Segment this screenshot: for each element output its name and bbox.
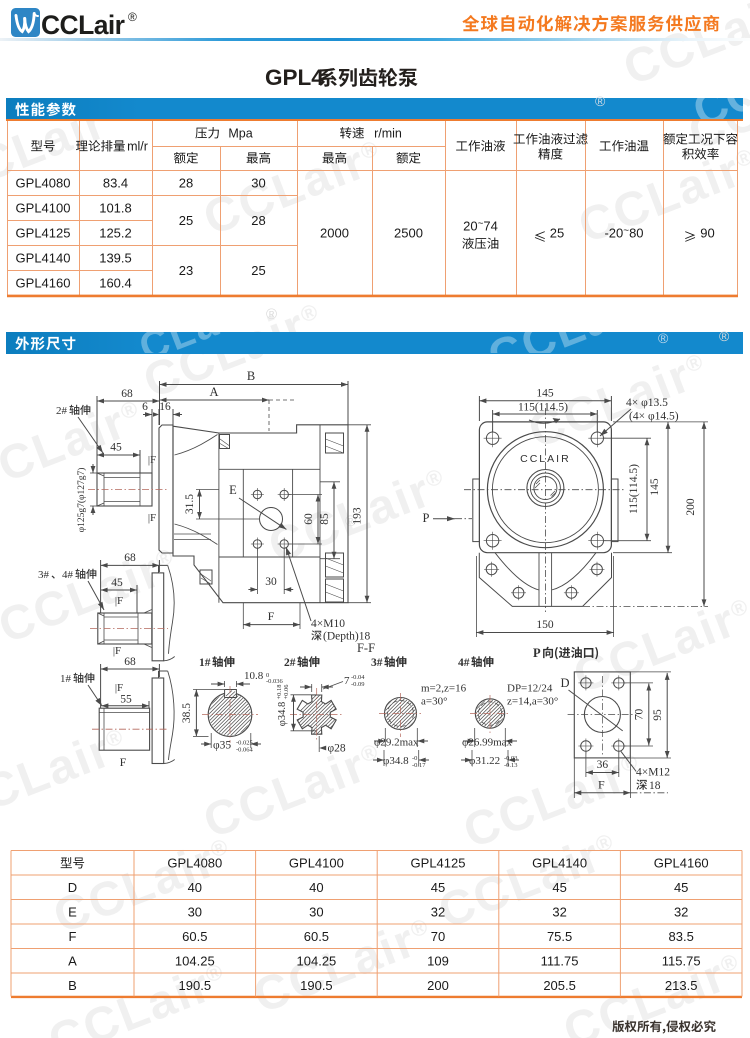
svg-text:-0.09: -0.09 <box>351 681 365 688</box>
svg-text:P: P <box>533 646 541 660</box>
svg-text:φ125g7(φ127g7): φ125g7(φ127g7) <box>76 468 87 533</box>
svg-text:36: 36 <box>597 759 609 771</box>
svg-text:-0.036: -0.036 <box>266 678 284 685</box>
svg-text:104.25: 104.25 <box>175 954 215 969</box>
svg-text:68: 68 <box>121 388 133 400</box>
svg-text:1#: 1# <box>60 673 72 685</box>
svg-text:115(114.5): 115(114.5) <box>628 464 640 514</box>
svg-text:+0.06: +0.06 <box>283 684 290 700</box>
svg-text:|F: |F <box>148 454 156 466</box>
svg-text:109: 109 <box>427 954 449 969</box>
svg-text:4#: 4# <box>62 569 74 581</box>
svg-text:φ34.8: φ34.8 <box>277 702 288 726</box>
svg-text:32: 32 <box>431 905 445 920</box>
svg-text:F: F <box>598 778 605 792</box>
svg-text:-0.17: -0.17 <box>412 762 426 769</box>
svg-text:104.25: 104.25 <box>297 954 337 969</box>
svg-text:115.75: 115.75 <box>662 954 701 969</box>
svg-text:GPL4: GPL4 <box>265 65 324 90</box>
svg-text:a=30°: a=30° <box>421 696 448 708</box>
svg-text:GPL4125: GPL4125 <box>411 856 466 871</box>
svg-text:m=2,z=16: m=2,z=16 <box>421 683 467 695</box>
svg-text:60.5: 60.5 <box>182 929 207 944</box>
svg-text:145: 145 <box>536 388 554 400</box>
svg-text:B: B <box>68 978 77 993</box>
svg-text:6: 6 <box>142 401 148 413</box>
svg-text:-0.064: -0.064 <box>236 747 254 754</box>
svg-text:45: 45 <box>111 577 123 589</box>
svg-text:D: D <box>68 880 77 895</box>
svg-text:68: 68 <box>124 552 136 564</box>
svg-text:95: 95 <box>652 709 664 721</box>
svg-text:GPL4140: GPL4140 <box>532 856 587 871</box>
svg-text:70: 70 <box>634 709 646 721</box>
svg-text:4×M10: 4×M10 <box>311 618 345 630</box>
svg-text:E: E <box>229 483 237 497</box>
svg-text:30: 30 <box>309 905 323 920</box>
svg-text:45: 45 <box>552 880 566 895</box>
svg-text:-0: -0 <box>412 755 417 762</box>
svg-text:7: 7 <box>344 675 350 687</box>
svg-text:45: 45 <box>431 880 445 895</box>
svg-text:z=14,a=30°: z=14,a=30° <box>507 696 558 708</box>
svg-text:φ26.99max: φ26.99max <box>462 737 513 749</box>
svg-text:31.5: 31.5 <box>184 494 196 514</box>
svg-text:φ35: φ35 <box>213 740 231 752</box>
svg-text:55: 55 <box>120 694 132 706</box>
svg-text:85: 85 <box>319 513 331 525</box>
svg-text:190.5: 190.5 <box>179 978 212 993</box>
svg-text:D: D <box>560 676 569 690</box>
svg-text:A: A <box>68 954 77 969</box>
svg-text:DP=12/24: DP=12/24 <box>507 683 553 695</box>
svg-text:40: 40 <box>309 880 323 895</box>
svg-text:E: E <box>68 905 77 920</box>
svg-text:F-F: F-F <box>357 641 375 655</box>
svg-text:205.5: 205.5 <box>543 978 576 993</box>
svg-text:+0.18: +0.18 <box>276 684 283 699</box>
svg-text:P: P <box>423 511 430 525</box>
svg-text:φ34.8: φ34.8 <box>383 755 409 767</box>
svg-text:4×M12: 4×M12 <box>636 767 670 779</box>
svg-text:145: 145 <box>649 478 661 496</box>
svg-text:190.5: 190.5 <box>300 978 333 993</box>
svg-text:2#: 2# <box>284 657 296 669</box>
svg-text:F: F <box>69 929 77 944</box>
svg-text:70: 70 <box>431 929 445 944</box>
svg-text:|F: |F <box>148 512 156 524</box>
svg-text:213.5: 213.5 <box>665 978 698 993</box>
svg-text:|F: |F <box>113 645 121 657</box>
svg-text:GPL4160: GPL4160 <box>654 856 709 871</box>
svg-text:40: 40 <box>188 880 202 895</box>
svg-text:200: 200 <box>427 978 449 993</box>
svg-text:75.5: 75.5 <box>547 929 572 944</box>
svg-text:60.5: 60.5 <box>304 929 329 944</box>
svg-text:30: 30 <box>188 905 202 920</box>
svg-text:-0.03: -0.03 <box>504 755 518 762</box>
svg-text:115(114.5): 115(114.5) <box>518 402 568 414</box>
svg-text:A: A <box>209 385 218 399</box>
svg-text:2#: 2# <box>56 405 68 417</box>
svg-text:φ29.2max: φ29.2max <box>374 737 419 749</box>
svg-text:83.5: 83.5 <box>669 929 694 944</box>
svg-text:3#: 3# <box>371 657 383 669</box>
svg-text:CCLair®: CCLair® <box>481 332 669 353</box>
svg-text:200: 200 <box>685 498 697 516</box>
svg-text:CLair: CLair <box>133 332 254 353</box>
svg-text:32: 32 <box>552 905 566 920</box>
svg-text:38.5: 38.5 <box>181 703 193 723</box>
svg-text:150: 150 <box>536 619 554 631</box>
svg-text:16: 16 <box>159 401 171 413</box>
svg-text:GPL4080: GPL4080 <box>167 856 222 871</box>
svg-text:4#: 4# <box>458 657 470 669</box>
svg-text:1#: 1# <box>199 657 211 669</box>
svg-text:φ31.22: φ31.22 <box>469 755 500 767</box>
svg-text:10.8: 10.8 <box>244 670 264 682</box>
svg-text:|F: |F <box>115 682 123 694</box>
svg-text:45: 45 <box>674 880 688 895</box>
svg-text:32: 32 <box>674 905 688 920</box>
svg-text:68: 68 <box>124 656 136 668</box>
svg-text:193: 193 <box>352 507 364 525</box>
svg-text:-0.13: -0.13 <box>504 762 518 769</box>
svg-text:CC: CC <box>686 98 743 119</box>
svg-text:111.75: 111.75 <box>541 954 579 969</box>
svg-text:(4× φ14.5): (4× φ14.5) <box>629 411 679 423</box>
svg-text:4× φ13.5: 4× φ13.5 <box>626 397 668 409</box>
svg-text:60: 60 <box>303 513 315 525</box>
svg-text:18: 18 <box>649 780 661 792</box>
svg-text:F: F <box>268 609 275 623</box>
svg-text:GPL4100: GPL4100 <box>289 856 344 871</box>
svg-text:φ28: φ28 <box>328 743 346 755</box>
svg-text:-0.025: -0.025 <box>236 740 253 747</box>
svg-text:3#: 3# <box>38 569 50 581</box>
svg-text:-0.04: -0.04 <box>351 674 365 681</box>
svg-text:45: 45 <box>110 442 122 454</box>
svg-text:F: F <box>120 755 127 769</box>
svg-text:B: B <box>247 369 255 383</box>
svg-text:|F: |F <box>115 595 123 607</box>
svg-text:30: 30 <box>265 576 277 588</box>
